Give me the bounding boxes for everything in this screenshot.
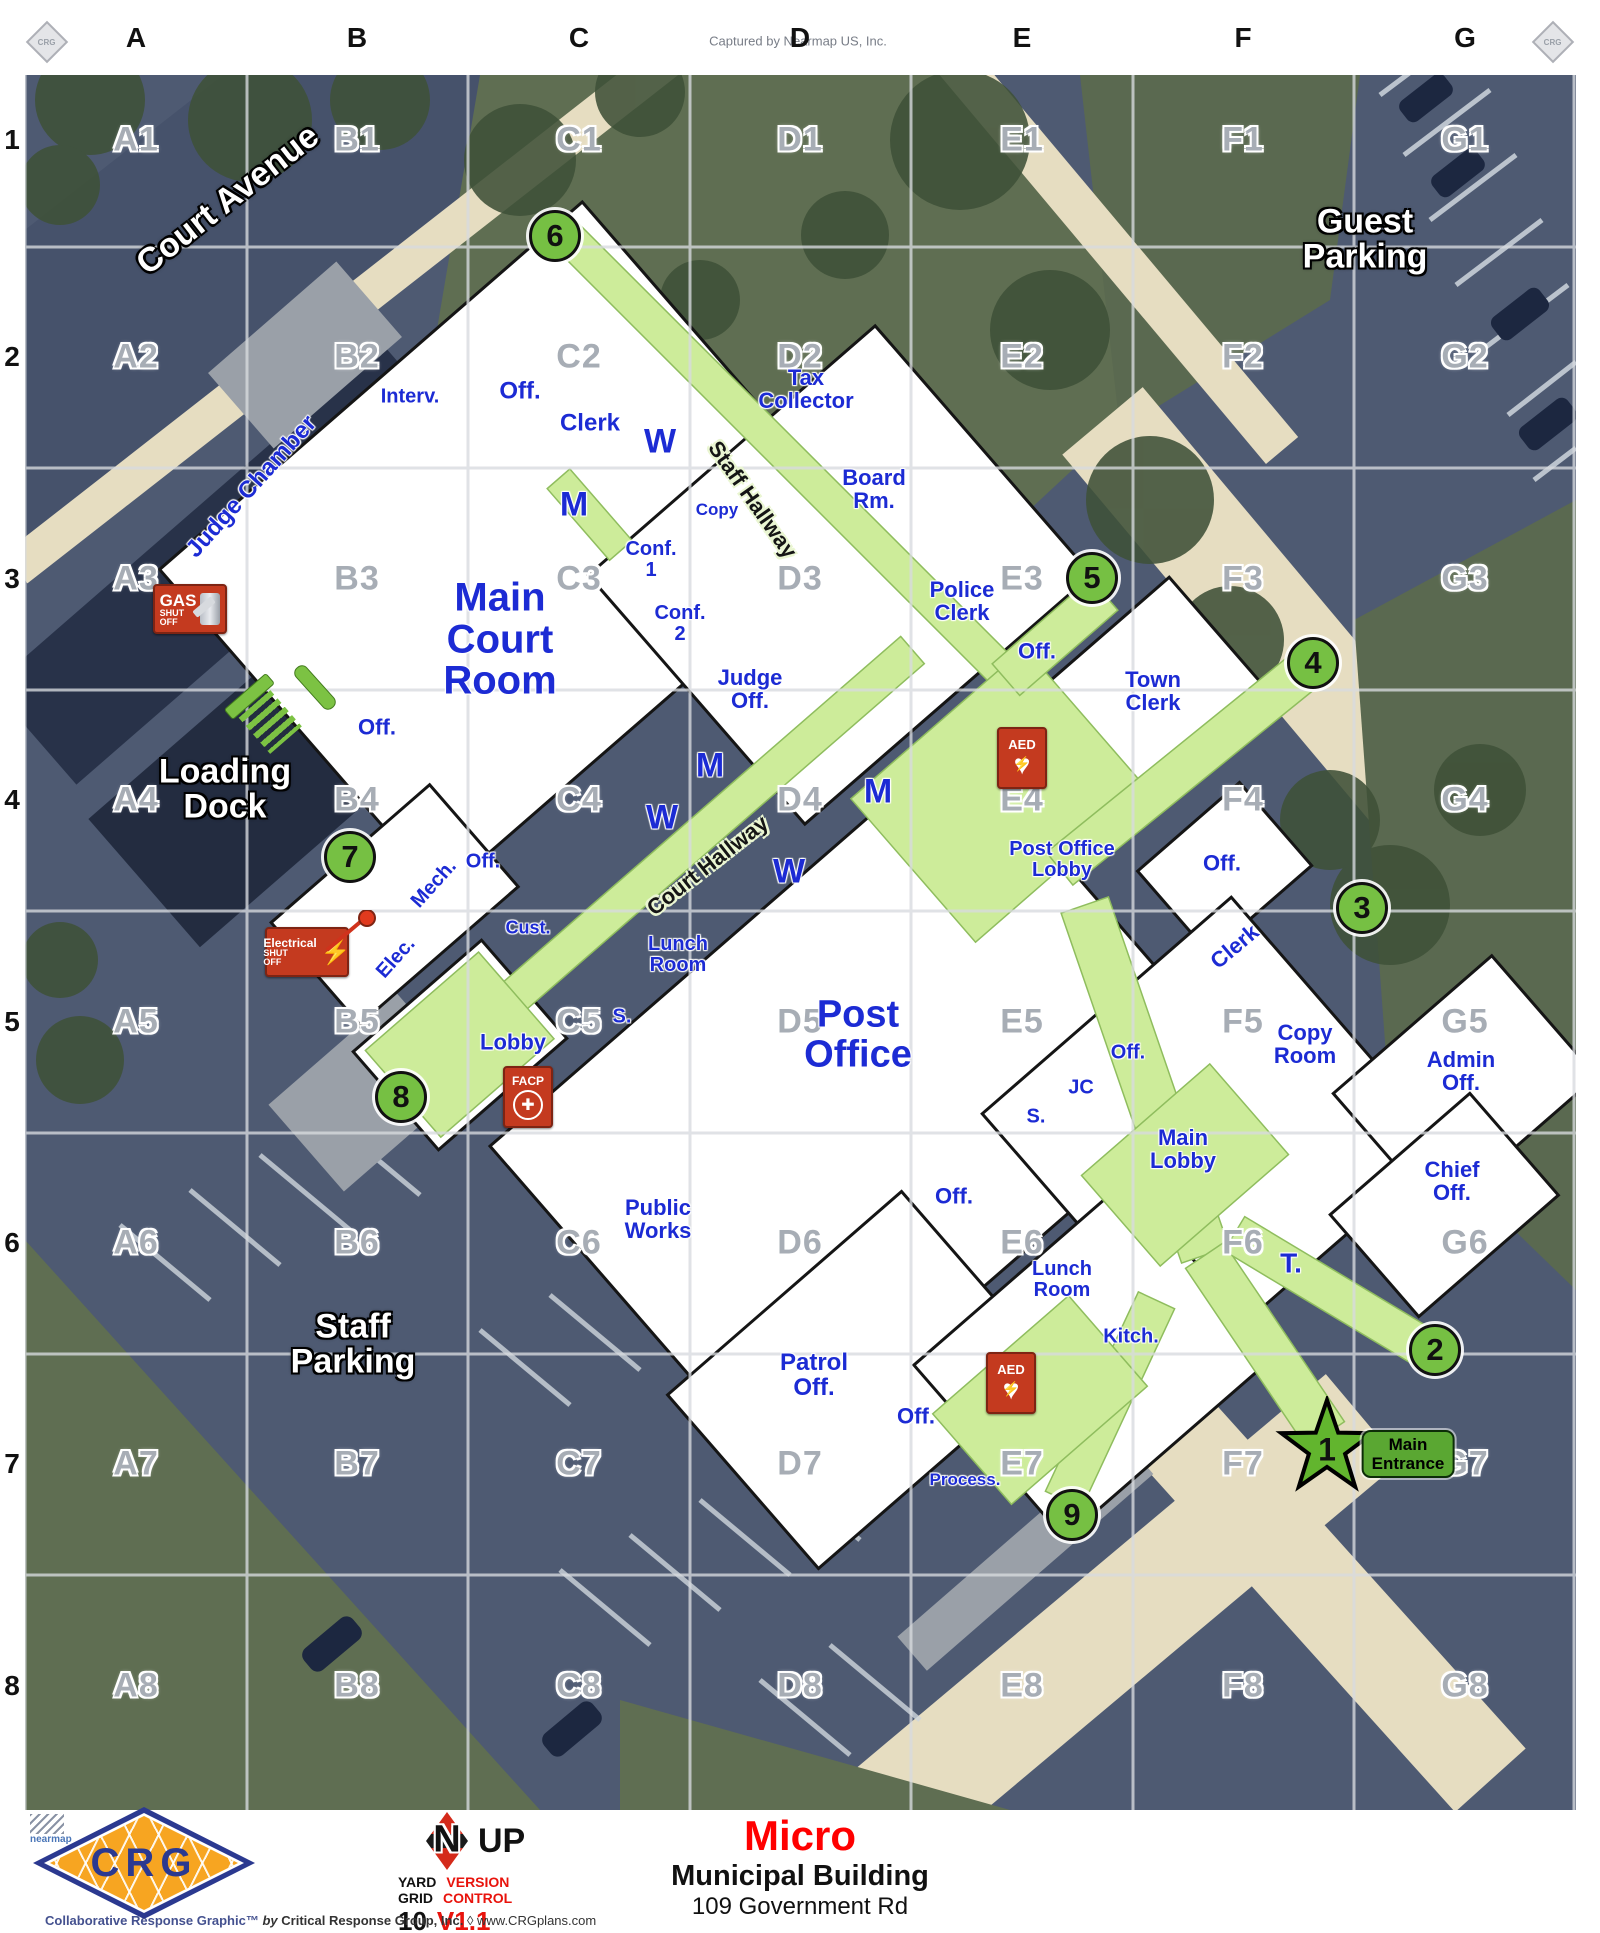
site-subtitle: Municipal Building bbox=[671, 1860, 929, 1893]
grid-cell-label-D6: D6 bbox=[777, 1224, 822, 1263]
credit-line: Collaborative Response Graphic™ by Criti… bbox=[45, 1913, 596, 1928]
crg-logo-text: CRG bbox=[33, 1807, 255, 1919]
grid-cell-label-B8: B8 bbox=[334, 1667, 379, 1706]
grid-cell-label-C3: C3 bbox=[556, 560, 601, 599]
grid-cell-label-F3: F3 bbox=[1222, 560, 1264, 599]
grid-cell-label-D8: D8 bbox=[777, 1667, 822, 1706]
control-label: CONTROL bbox=[443, 1890, 512, 1906]
route-marker-4: 4 bbox=[1287, 637, 1339, 689]
row-header-8: 8 bbox=[4, 1670, 20, 1702]
version-label: VERSION bbox=[446, 1874, 509, 1890]
grid-cell-label-A3: A3 bbox=[113, 560, 158, 599]
column-header-E: E bbox=[1013, 22, 1032, 54]
grid-cell-label-F8: F8 bbox=[1222, 1667, 1264, 1706]
facp-icon: FACP✚ bbox=[503, 1066, 553, 1128]
grid-cell-label-G4: G4 bbox=[1441, 781, 1488, 820]
grid-label: GRID bbox=[398, 1890, 433, 1906]
gas-shut-off-text: GASSHUTOFF bbox=[160, 592, 197, 627]
grid-cell-label-D4: D4 bbox=[777, 781, 822, 820]
aed-icon: AED♥⚡ bbox=[997, 727, 1047, 789]
site-title: Micro bbox=[671, 1812, 929, 1860]
row-header-3: 3 bbox=[4, 563, 20, 595]
electrical-off-label: OFF bbox=[263, 958, 316, 967]
column-header-F: F bbox=[1234, 22, 1251, 54]
grid-cell-label-C8: C8 bbox=[556, 1667, 601, 1706]
aed-lightning-glyph: ⚡ bbox=[1013, 758, 1030, 771]
grid-cell-label-C4: C4 bbox=[556, 781, 601, 820]
route-marker-8: 8 bbox=[375, 1071, 427, 1123]
yard-label: YARD bbox=[398, 1874, 436, 1890]
grid-cell-label-C6: C6 bbox=[556, 1224, 601, 1263]
crg-corner-watermark: CRG bbox=[1532, 21, 1574, 63]
grid-cell-label-B3: B3 bbox=[334, 560, 379, 599]
crg-corner-watermark: CRG bbox=[26, 21, 68, 63]
grid-cell-label-F7: F7 bbox=[1222, 1445, 1264, 1484]
credit-url: www.CRGplans.com bbox=[477, 1913, 596, 1928]
route-marker-3: 3 bbox=[1336, 882, 1388, 934]
grid-cell-label-D1: D1 bbox=[777, 121, 822, 160]
grid-cell-label-E2: E2 bbox=[1000, 338, 1044, 377]
grid-cell-label-D5: D5 bbox=[777, 1003, 822, 1042]
grid-cell-label-C1: C1 bbox=[556, 121, 601, 160]
grid-cell-label-A7: A7 bbox=[113, 1445, 158, 1484]
facp-cross-glyph: ✚ bbox=[513, 1090, 543, 1120]
grid-cell-label-E5: E5 bbox=[1000, 1003, 1044, 1042]
grid-cell-label-G1: G1 bbox=[1441, 121, 1488, 160]
route-marker-9: 9 bbox=[1046, 1489, 1098, 1541]
main-entrance-label: Main Entrance bbox=[1362, 1430, 1455, 1478]
crg-map-page: { "attribution": "Captured by Nearmap US… bbox=[0, 0, 1600, 1933]
aerial-map bbox=[25, 75, 1576, 1810]
compass-up-label: UP bbox=[478, 1822, 525, 1861]
grid-cell-label-B5: B5 bbox=[334, 1003, 379, 1042]
grid-cell-label-C7: C7 bbox=[556, 1445, 601, 1484]
grid-cell-label-F2: F2 bbox=[1222, 338, 1264, 377]
route-marker-7: 7 bbox=[324, 831, 376, 883]
gas-big-label: GAS bbox=[160, 592, 197, 609]
grid-cell-label-B7: B7 bbox=[334, 1445, 379, 1484]
crg-logo: CRG bbox=[33, 1807, 255, 1919]
credit-company: Critical Response Group, Inc. bbox=[281, 1913, 463, 1928]
grid-cell-label-G2: G2 bbox=[1441, 338, 1488, 377]
grid-cell-label-A2: A2 bbox=[113, 338, 158, 377]
grid-cell-label-C5: C5 bbox=[556, 1003, 601, 1042]
route-marker-5: 5 bbox=[1066, 552, 1118, 604]
grid-cell-label-A4: A4 bbox=[113, 781, 158, 820]
site-address: 109 Government Rd bbox=[671, 1893, 929, 1921]
gas-shut-off-icon: GASSHUTOFF bbox=[153, 584, 227, 634]
footer: nearmap CRG N UP YARD VERSION GRID CONTR… bbox=[0, 1810, 1600, 1933]
grid-cell-label-E8: E8 bbox=[1000, 1667, 1044, 1706]
electrical-shut-off-text: ElectricalSHUTOFF bbox=[263, 937, 316, 967]
row-header-6: 6 bbox=[4, 1227, 20, 1259]
column-header-B: B bbox=[347, 22, 367, 54]
credit-brand: Collaborative Response Graphic™ bbox=[45, 1913, 259, 1928]
gas-off-label: OFF bbox=[160, 618, 197, 627]
grid-cell-label-D3: D3 bbox=[777, 560, 822, 599]
title-block: Micro Municipal Building 109 Government … bbox=[671, 1812, 929, 1921]
row-header-2: 2 bbox=[4, 341, 20, 373]
grid-cell-label-E7: E7 bbox=[1000, 1445, 1044, 1484]
row-header-1: 1 bbox=[4, 124, 20, 156]
grid-cell-label-G8: G8 bbox=[1441, 1667, 1488, 1706]
grid-cell-label-B1: B1 bbox=[334, 121, 379, 160]
grid-cell-label-A6: A6 bbox=[113, 1224, 158, 1263]
grid-cell-label-E6: E6 bbox=[1000, 1224, 1044, 1263]
row-header-4: 4 bbox=[4, 784, 20, 816]
aed-lightning-glyph: ⚡ bbox=[1002, 1383, 1019, 1396]
grid-cell-label-D7: D7 bbox=[777, 1445, 822, 1484]
row-header-5: 5 bbox=[4, 1006, 20, 1038]
grid-cell-label-D2: D2 bbox=[777, 338, 822, 377]
grid-cell-label-A8: A8 bbox=[113, 1667, 158, 1706]
grid-cell-label-E1: E1 bbox=[1000, 121, 1044, 160]
grid-cell-label-F5: F5 bbox=[1222, 1003, 1264, 1042]
aed-heart-glyph: ♥⚡ bbox=[1014, 752, 1031, 779]
aed-icon: AED♥⚡ bbox=[986, 1352, 1036, 1414]
facp-label: FACP bbox=[512, 1074, 544, 1088]
grid-cell-label-G5: G5 bbox=[1441, 1003, 1488, 1042]
column-header-G: G bbox=[1454, 22, 1476, 54]
aed-heart-glyph: ♥⚡ bbox=[1003, 1377, 1020, 1404]
grid-cell-label-G3: G3 bbox=[1441, 560, 1488, 599]
grid-cell-label-F6: F6 bbox=[1222, 1224, 1264, 1263]
credit-by: by bbox=[262, 1913, 277, 1928]
credit-separator: ◊ bbox=[467, 1913, 473, 1928]
grid-cell-label-F1: F1 bbox=[1222, 121, 1264, 160]
electrical-pin bbox=[325, 910, 385, 956]
grid-cell-label-A1: A1 bbox=[113, 121, 158, 160]
column-header-A: A bbox=[126, 22, 146, 54]
column-header-C: C bbox=[569, 22, 589, 54]
grid-cell-label-B2: B2 bbox=[334, 338, 379, 377]
grid-cell-label-F4: F4 bbox=[1222, 781, 1264, 820]
route-marker-6: 6 bbox=[529, 210, 581, 262]
grid-cell-label-E3: E3 bbox=[1000, 560, 1044, 599]
compass-north-label: N bbox=[433, 1819, 460, 1862]
grid-cell-label-G6: G6 bbox=[1441, 1224, 1488, 1263]
row-header-7: 7 bbox=[4, 1448, 20, 1480]
grid-cell-label-B6: B6 bbox=[334, 1224, 379, 1263]
column-header-D: D bbox=[790, 22, 810, 54]
grid-cell-label-C2: C2 bbox=[556, 338, 601, 377]
grid-cell-label-A5: A5 bbox=[113, 1003, 158, 1042]
grid-cell-label-B4: B4 bbox=[334, 781, 379, 820]
gas-valve-glyph bbox=[200, 593, 220, 625]
route-marker-2: 2 bbox=[1409, 1324, 1461, 1376]
